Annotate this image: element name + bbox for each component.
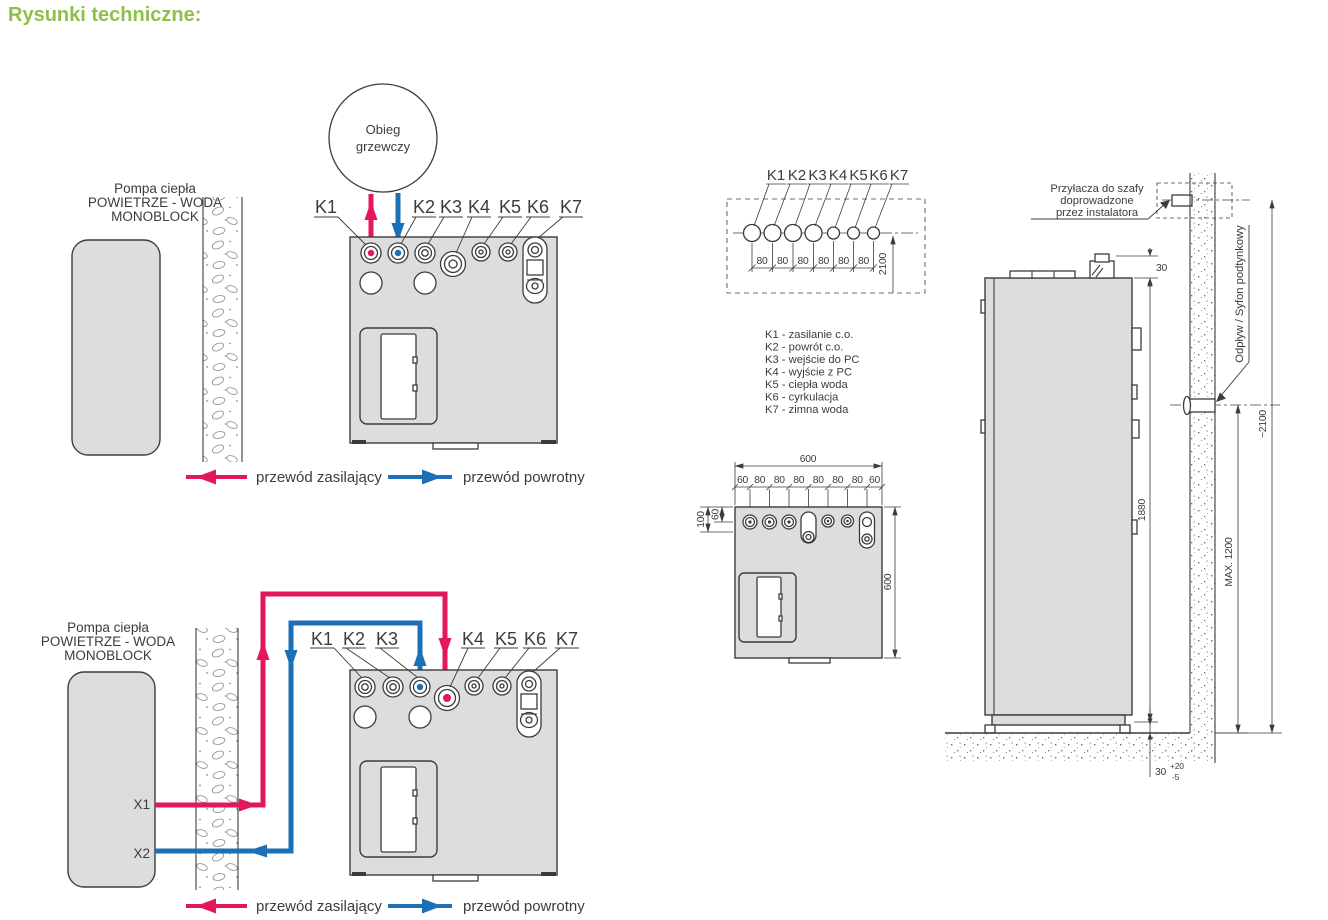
side-fitting-4 [1132,520,1137,534]
drain-label: Odpływ / Syfon podtynkowy [1234,225,1246,363]
installer-note-line3: przez instalatora [1056,207,1139,219]
dim-80-6: 80 [858,256,870,267]
side-fitting-1 [1132,328,1141,350]
return-arrow-left [247,845,267,858]
top-air-vent [1010,271,1075,278]
return-arrow-down [285,650,298,669]
port-legend-k2: K2 - powrót c.o. [765,342,843,354]
dim-100: 100 [696,511,707,528]
unit-front-view [350,237,557,449]
dim-60-r: 60 [869,475,881,486]
port-k1-supply-dot [368,250,374,256]
k7-label: K7 [560,197,582,217]
dim-80-3: 80 [793,475,805,486]
dim-30-bottom: 30 [1155,767,1167,778]
heat-pump-label-line3: MONOBLOCK [111,209,199,224]
display-panel [739,573,796,642]
dim-80-2: 80 [777,256,789,267]
template-port-labels: K1 K2 K3 K4 K5 K6 K7 [754,167,909,228]
unit-side-view [981,254,1141,733]
return-legend-label: przewód powrotny [463,469,585,486]
heat-pump-label-line1: Pompa ciepła [114,181,196,196]
k2-label: K2 [343,629,365,649]
supply-arrow-right [239,799,258,812]
floor [945,733,1215,763]
blank-hole-1 [354,706,376,728]
heat-pump-label-line2: POWIETRZE - WODA [88,195,222,210]
k3-label: K3 [440,197,462,217]
display-panel [360,328,437,424]
safety-valve-group [1090,254,1114,278]
top-view-depth-dim: 600 [883,507,901,658]
unit-top-view-body [735,507,882,663]
k7-label: K7 [556,629,578,649]
port-legend-k1: K1 - zasilanie c.o. [765,329,853,341]
port-legend-list: K1 - zasilanie c.o. K2 - powrót c.o. K3 … [765,329,860,416]
supply-arrow-up [365,201,378,220]
k5-label: K5 [849,167,867,184]
port-legend-k3: K3 - wejście do PC [765,354,860,366]
port-legend-k4: K4 - wyjście z PC [765,367,852,379]
dim-1880: 1880 [1137,498,1148,521]
unit-base [992,715,1125,725]
blank-hole-1 [360,272,382,294]
blank-hole-2 [409,706,431,728]
diagram-unit-top-view: 600 60 80 80 80 80 80 80 60 100 [696,454,901,663]
port-k4-supply-dot [443,694,451,702]
k5-label: K5 [495,629,517,649]
diagram-heating-circuit-connection: Pompa ciepła POWIETRZE - WODA MONOBLOCK … [72,84,585,486]
dim-drain-max: MAX. 1200 [1215,405,1248,733]
foot-back [1120,725,1130,733]
connection-pipe-stub [1172,195,1192,206]
heating-circuit-line1: Obieg [366,122,401,137]
unit-front-view [350,670,557,881]
heat-pump-outline [72,240,160,455]
dim-max-1200: MAX. 1200 [1224,537,1235,587]
diagram-wall-hole-template: K1 K2 K3 K4 K5 K6 K7 80 80 80 80 80 80 [727,167,925,293]
dim-60-l: 60 [737,475,749,486]
top-view-offset-dims: 100 60 [696,507,733,532]
k1-label: K1 [767,167,785,184]
port-legend-k7: K7 - zimna woda [765,404,849,416]
dim-80-1: 80 [756,256,768,267]
k3-label: K3 [808,167,826,184]
dim-80-3: 80 [797,256,809,267]
heat-pump-label-line1: Pompa ciepła [67,620,149,635]
pipe-legend-top: przewód zasilający przewód powrotny [186,469,585,486]
template-spacing-dims: 80 80 80 80 80 80 [749,241,878,272]
foot-front [985,725,995,733]
side-fitting-3 [1132,420,1139,438]
port-legend-k5: K5 - ciepła woda [765,379,848,391]
supply-legend-arrow [196,470,216,485]
dim-60: 60 [711,509,722,521]
port-k3-return-dot [417,684,423,690]
port-legend-k6: K6 - cyrkulacja [765,392,839,404]
k4-label: K4 [462,629,484,649]
x2-label: X2 [133,846,150,861]
dim-80-2: 80 [774,475,786,486]
dim-600-width: 600 [800,454,817,465]
dim-80-5: 80 [832,475,844,486]
dim-wall-connection-height: ~2100 [1215,200,1282,733]
return-legend-arrow [422,470,442,485]
technical-drawings-svg: Pompa ciepła POWIETRZE - WODA MONOBLOCK … [0,0,1328,920]
dim-2100: 2100 [878,252,889,275]
technical-drawings-page: Rysunki techniczne: [0,0,1328,920]
k7-label: K7 [890,167,908,184]
dim-80-6: 80 [852,475,864,486]
return-arrow-up [414,647,427,666]
template-outline [727,199,925,293]
k2-label: K2 [413,197,435,217]
k2-label: K2 [788,167,806,184]
port-k2-return-dot [395,250,401,256]
k3-label: K3 [376,629,398,649]
side-fitting-2 [1132,385,1137,399]
heating-circuit-circle [329,84,437,192]
display-panel [360,761,437,857]
supply-legend-label: przewód zasilający [256,898,382,915]
k4-label: K4 [468,197,490,217]
pipe-legend-bottom: przewód zasilający przewód powrotny [186,898,585,915]
installer-note-line1: Przyłacza do szafy [1050,183,1144,195]
dim-600-depth: 600 [883,573,894,590]
installer-note-line2: doprowadzone [1060,195,1133,207]
blank-hole-2 [414,272,436,294]
diagram-heat-pump-connection: Pompa ciepła POWIETRZE - WODA MONOBLOCK … [41,594,585,915]
heat-pump-label-line2: POWIETRZE - WODA [41,634,175,649]
dim-80-4: 80 [813,475,825,486]
supply-arrow-down [439,638,452,657]
dim-30-top: 30 [1156,263,1168,274]
dim-80-1: 80 [754,475,766,486]
dim-tol-plus: +20 [1170,761,1184,771]
dim-2100-wall: ~2100 [1258,410,1269,438]
k6-label: K6 [524,629,546,649]
k1-label: K1 [311,629,333,649]
diagram-side-installation-view: Przyłacza do szafy doprowadzone przez in… [945,173,1282,782]
drain-label-group: Odpływ / Syfon podtynkowy [1216,225,1249,402]
dim-tol-minus: -5 [1172,772,1180,782]
wall-section [203,197,242,462]
k6-label: K6 [527,197,549,217]
installer-note-arrowhead [1160,200,1170,209]
supply-arrow-up [257,641,270,660]
k4-label: K4 [829,167,847,184]
heating-circuit-line2: grzewczy [356,139,411,154]
heat-pump-label-line3: MONOBLOCK [64,648,152,663]
k5-label: K5 [499,197,521,217]
dim-80-5: 80 [838,256,850,267]
supply-legend-label: przewód zasilający [256,469,382,486]
x1-label: X1 [133,797,150,812]
drain-arrowhead [1216,393,1226,403]
k6-label: K6 [869,167,887,184]
dim-80-4: 80 [818,256,830,267]
k1-label: K1 [315,197,337,217]
template-height-dim: 2100 [878,236,893,293]
return-legend-label: przewód powrotny [463,898,585,915]
supply-legend-arrow [196,899,216,914]
return-legend-arrow [422,899,442,914]
wall-section [1190,173,1215,763]
